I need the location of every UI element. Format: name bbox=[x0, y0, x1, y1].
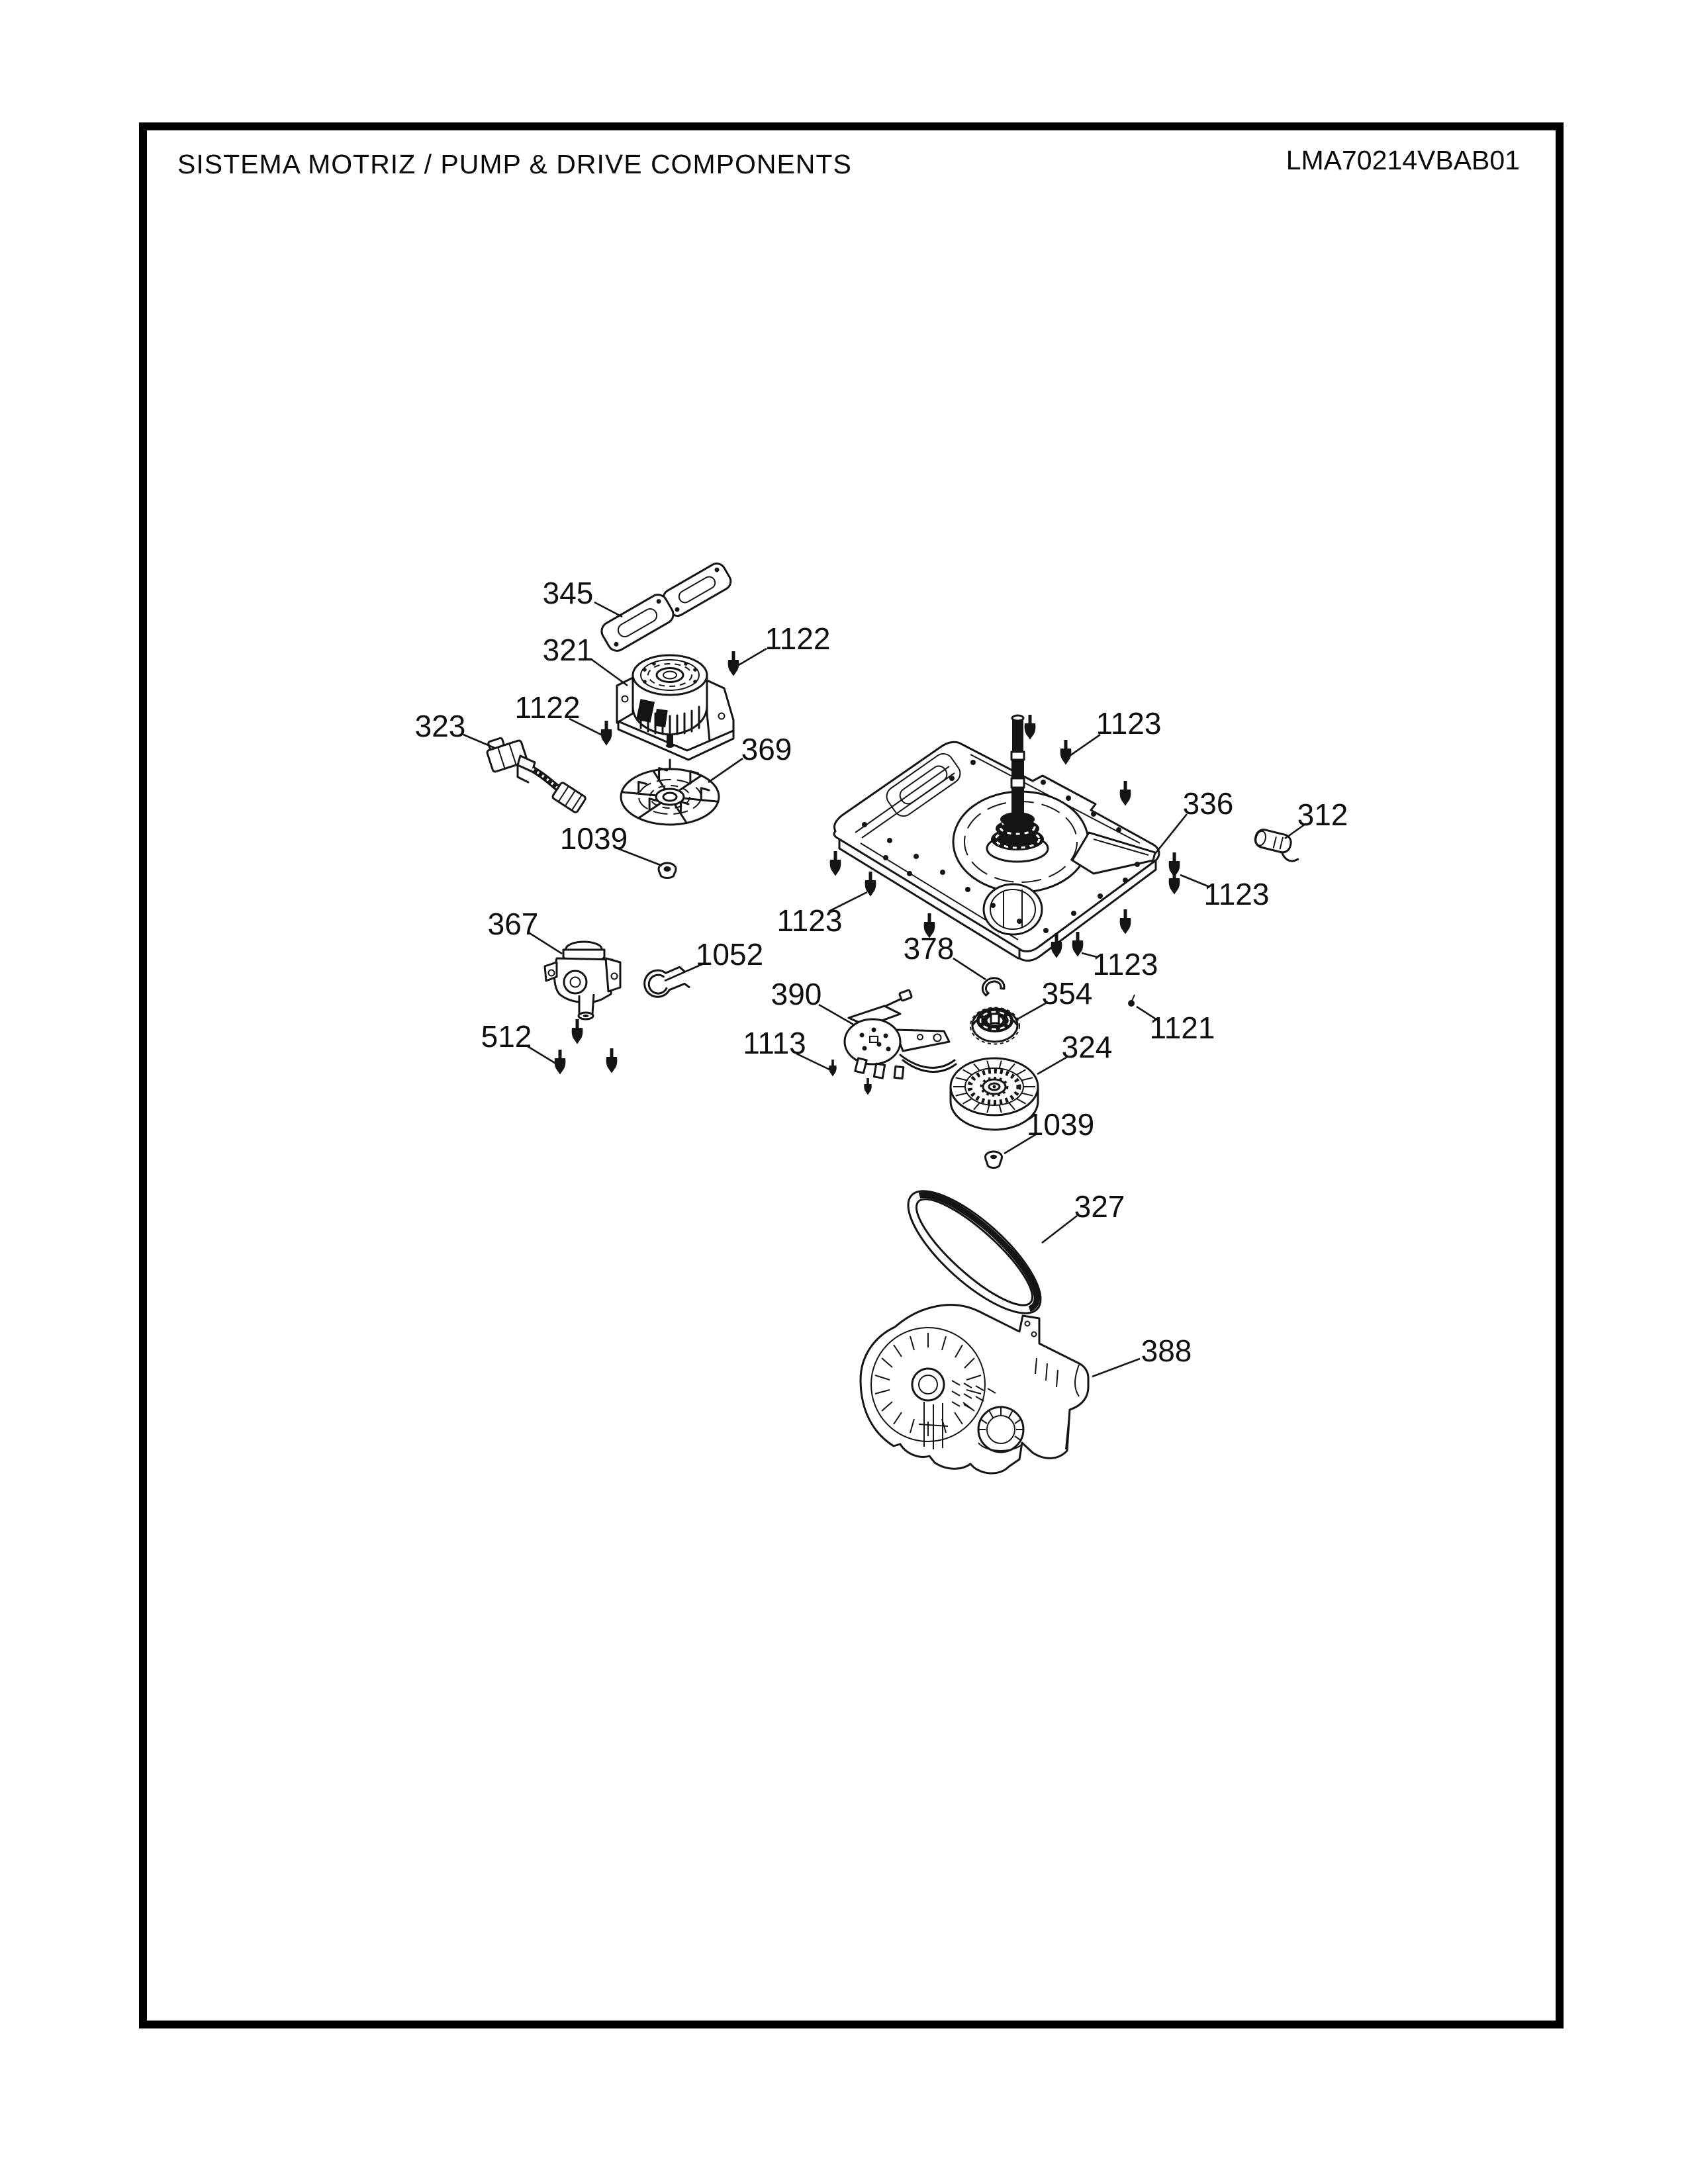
screw-512 bbox=[572, 1019, 583, 1044]
callout-1123-bottom: 1123 bbox=[1093, 947, 1158, 981]
callout-1039-fan: 1039 bbox=[560, 821, 628, 856]
callout-512: 512 bbox=[481, 1019, 532, 1054]
belt-cover bbox=[861, 1305, 1088, 1473]
callout-367: 367 bbox=[488, 907, 539, 941]
transmission-platform bbox=[834, 715, 1159, 960]
clutch-gear bbox=[970, 1008, 1019, 1044]
callout-354: 354 bbox=[1042, 976, 1093, 1011]
screw-1123 bbox=[1120, 781, 1131, 806]
pin-screw-1121 bbox=[1128, 995, 1135, 1007]
callout-321: 321 bbox=[543, 633, 594, 667]
page-title: SISTEMA MOTRIZ / PUMP & DRIVE COMPONENTS bbox=[177, 149, 852, 179]
callout-345: 345 bbox=[543, 576, 594, 610]
callout-378: 378 bbox=[904, 931, 955, 966]
screw-1123 bbox=[1060, 740, 1072, 765]
clip bbox=[1252, 828, 1303, 862]
callout-1123-right: 1123 bbox=[1204, 877, 1270, 911]
screw-1122-left bbox=[601, 721, 612, 746]
document-number: LMA70214VBAB01 bbox=[1286, 145, 1520, 175]
callout-1123-left: 1123 bbox=[777, 903, 843, 938]
drive-pulley bbox=[951, 1058, 1038, 1130]
callout-323: 323 bbox=[415, 709, 466, 743]
callout-1121: 1121 bbox=[1150, 1011, 1215, 1045]
drain-pump bbox=[545, 942, 620, 1019]
screw-1123 bbox=[830, 851, 841, 876]
callout-327: 327 bbox=[1074, 1189, 1125, 1224]
callout-312: 312 bbox=[1297, 797, 1348, 832]
motor-fan bbox=[621, 760, 719, 825]
callout-390: 390 bbox=[771, 977, 822, 1011]
hose-clamp bbox=[643, 966, 690, 999]
callout-1122-left: 1122 bbox=[515, 690, 581, 725]
shifter-actuator bbox=[845, 990, 956, 1079]
callout-369: 369 bbox=[741, 732, 792, 766]
page-border bbox=[143, 126, 1560, 2025]
drive-belt bbox=[891, 1173, 1058, 1332]
screw-1123 bbox=[1120, 909, 1131, 934]
screw-1123 bbox=[1169, 870, 1180, 895]
motor-mount-pad-lower bbox=[598, 592, 677, 655]
motor-wiring-harness bbox=[484, 733, 586, 813]
callout-1113: 1113 bbox=[743, 1026, 806, 1060]
callout-324: 324 bbox=[1062, 1030, 1113, 1064]
screw-1123 bbox=[1072, 932, 1084, 957]
screw-1113 bbox=[864, 1078, 871, 1095]
callout-1122-right: 1122 bbox=[765, 621, 831, 656]
callout-1039-pulley: 1039 bbox=[1027, 1107, 1094, 1142]
screw-1113 bbox=[829, 1060, 836, 1077]
parts-diagram-page: SISTEMA MOTRIZ / PUMP & DRIVE COMPONENTS… bbox=[0, 0, 1688, 2184]
screw-1122-right bbox=[728, 651, 739, 676]
screw-512 bbox=[606, 1048, 618, 1073]
callout-1052: 1052 bbox=[696, 937, 763, 972]
pulley-nut bbox=[986, 1152, 1002, 1168]
callout-336: 336 bbox=[1183, 786, 1234, 821]
screw-1123 bbox=[1025, 715, 1036, 740]
drive-motor bbox=[617, 655, 733, 760]
screw-512 bbox=[555, 1050, 566, 1075]
callout-388: 388 bbox=[1141, 1334, 1192, 1368]
callout-1123-top: 1123 bbox=[1096, 706, 1162, 741]
